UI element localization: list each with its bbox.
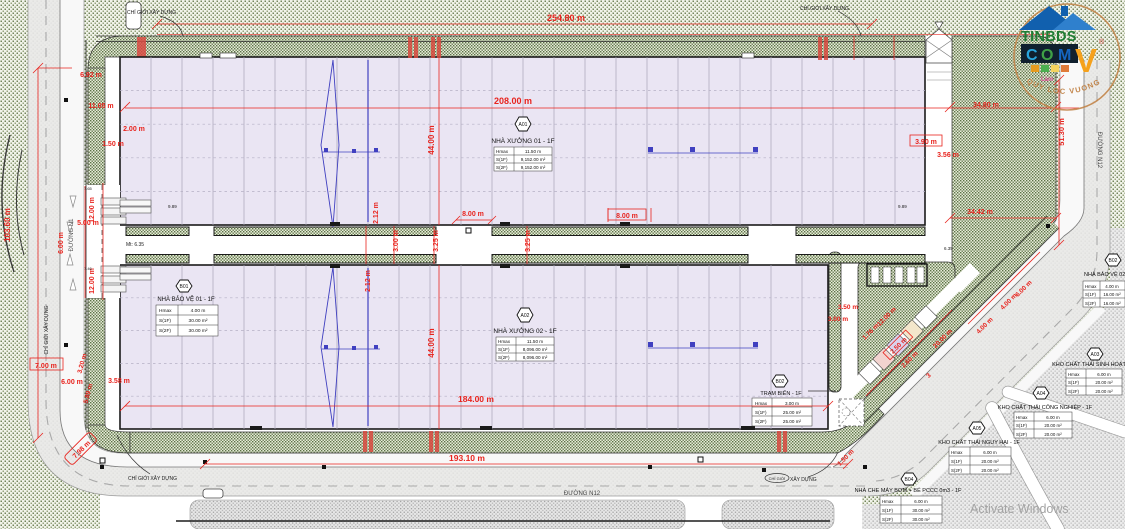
svg-text:TRẠM BIẾN - 1F: TRẠM BIẾN - 1F: [760, 390, 802, 397]
svg-text:3.50 m: 3.50 m: [838, 304, 858, 311]
svg-text:9,152.00 m²: 9,152.00 m²: [521, 165, 546, 170]
svg-text:A04: A04: [1037, 391, 1046, 397]
svg-text:16.00 m²: 16.00 m²: [1103, 301, 1121, 306]
svg-text:3.90 m: 3.90 m: [915, 139, 937, 146]
svg-text:S(2F): S(2F): [1016, 432, 1028, 437]
svg-text:C: C: [1026, 47, 1038, 64]
svg-text:B02: B02: [776, 379, 785, 385]
svg-text:NHÀ BẢO VỆ 01 - 1F: NHÀ BẢO VỆ 01 - 1F: [157, 295, 215, 303]
svg-text:25.00 m²: 25.00 m²: [783, 410, 802, 415]
svg-text:11.50 m: 11.50 m: [527, 339, 543, 344]
svg-text:Hmax: Hmax: [951, 450, 963, 455]
svg-text:S(1F): S(1F): [1085, 292, 1097, 297]
svg-text:6.00 m: 6.00 m: [914, 499, 928, 504]
svg-text:9,152.00 m²: 9,152.00 m²: [521, 157, 546, 162]
svg-text:20.00 m²: 20.00 m²: [1044, 432, 1062, 437]
svg-text:6.00 m: 6.00 m: [1097, 372, 1111, 377]
svg-text:KHO CHẤT THẢI CÔNG NGHIỆP - 1F: KHO CHẤT THẢI CÔNG NGHIỆP - 1F: [998, 403, 1093, 411]
svg-text:KHO CHẤT THẢI SINH HOẠT: KHO CHẤT THẢI SINH HOẠT: [1052, 361, 1125, 368]
svg-text:3.00 m: 3.00 m: [393, 230, 400, 252]
svg-text:34.42 m: 34.42 m: [967, 209, 993, 216]
svg-text:NHÀ XƯỞNG 01 - 1F: NHÀ XƯỞNG 01 - 1F: [491, 136, 554, 145]
svg-text:11.50 m: 11.50 m: [525, 149, 541, 154]
svg-text:S(1F): S(1F): [951, 459, 963, 464]
svg-text:CHỈ GIỚI XÂY DỰNG: CHỈ GIỚI XÂY DỰNG: [127, 9, 176, 16]
svg-text:XÂY DỰNG: XÂY DỰNG: [790, 476, 817, 483]
svg-text:103.60 m: 103.60 m: [3, 208, 12, 242]
svg-text:44.00 m: 44.00 m: [427, 328, 436, 357]
svg-text:7.65: 7.65: [84, 186, 93, 191]
svg-text:11.05 m: 11.05 m: [88, 103, 113, 110]
svg-text:16.00 m²: 16.00 m²: [1103, 292, 1121, 297]
svg-text:1.50 m: 1.50 m: [102, 141, 124, 148]
svg-text:Hmax: Hmax: [755, 401, 768, 406]
svg-text:S(1F): S(1F): [496, 157, 508, 162]
svg-text:6.92 m: 6.92 m: [80, 72, 102, 79]
svg-text:6.00 m: 6.00 m: [1046, 415, 1060, 420]
svg-text:Hmax: Hmax: [1085, 284, 1097, 289]
svg-text:S(1F): S(1F): [498, 347, 510, 352]
svg-text:ĐƯỜNG N1: ĐƯỜNG N1: [68, 218, 75, 252]
svg-text:2.12 m: 2.12 m: [373, 202, 380, 224]
svg-text:20.00 m²: 20.00 m²: [1095, 380, 1113, 385]
svg-text:2.12 m: 2.12 m: [365, 270, 372, 292]
svg-text:CHỈ GIỚI XÂY DỰNG: CHỈ GIỚI XÂY DỰNG: [43, 305, 50, 354]
svg-text:A01: A01: [519, 122, 528, 128]
svg-text:S(2F): S(2F): [755, 419, 767, 424]
svg-text:B02: B02: [1109, 258, 1118, 264]
svg-text:S(1F): S(1F): [1068, 380, 1080, 385]
svg-text:O: O: [1041, 47, 1053, 64]
svg-text:8.00 m: 8.00 m: [616, 213, 638, 220]
svg-text:20.00 m²: 20.00 m²: [1095, 389, 1113, 394]
svg-text:2.00 m: 2.00 m: [123, 126, 145, 133]
svg-text:51.30 m: 51.30 m: [1057, 118, 1066, 146]
svg-text:S(1F): S(1F): [882, 508, 894, 513]
svg-text:S(2F): S(2F): [1068, 389, 1080, 394]
svg-text:20.00 m²: 20.00 m²: [981, 468, 999, 473]
svg-text:Mt: 6.35: Mt: 6.35: [126, 242, 144, 248]
svg-text:B04: B04: [905, 477, 914, 483]
svg-text:208.00 m: 208.00 m: [494, 96, 532, 106]
svg-text:S(2F): S(2F): [496, 165, 508, 170]
svg-text:3.00 m: 3.00 m: [785, 401, 799, 406]
svg-text:NHÀ CHE MÁY BƠM + BỂ PCCC 0m3: NHÀ CHE MÁY BƠM + BỂ PCCC 0m3 - 1F: [855, 487, 962, 494]
svg-text:20.00 m²: 20.00 m²: [981, 459, 999, 464]
svg-text:ĐƯỜNG N12: ĐƯỜNG N12: [1096, 132, 1103, 169]
svg-text:B01: B01: [180, 284, 189, 290]
svg-text:ĐƯỜNG N12: ĐƯỜNG N12: [564, 490, 601, 497]
svg-text:NHÀ BẢO VỆ 02: NHÀ BẢO VỆ 02: [1084, 270, 1125, 278]
svg-text:S(2F): S(2F): [882, 517, 894, 522]
svg-text:S(2F): S(2F): [498, 355, 510, 360]
svg-text:Hmax: Hmax: [882, 499, 894, 504]
svg-text:8,096.00 m²: 8,096.00 m²: [523, 347, 548, 352]
svg-text:6.00 m: 6.00 m: [58, 232, 65, 254]
svg-text:9.89: 9.89: [168, 204, 177, 209]
svg-text:A05: A05: [973, 426, 982, 432]
svg-text:V: V: [1075, 42, 1097, 79]
svg-text:TINBDS: TINBDS: [1021, 29, 1077, 45]
svg-text:193.10 m: 193.10 m: [449, 453, 485, 463]
svg-text:184.00 m: 184.00 m: [458, 394, 494, 404]
svg-text:Activate Windows: Activate Windows: [970, 502, 1069, 516]
svg-text:3.58 m: 3.58 m: [108, 378, 130, 385]
svg-text:S(2F): S(2F): [159, 328, 171, 334]
svg-text:254.80 m: 254.80 m: [547, 13, 585, 23]
svg-text:30.00 m²: 30.00 m²: [912, 517, 930, 522]
svg-text:CHỈ GIỚI XÂY DỰNG: CHỈ GIỚI XÂY DỰNG: [128, 475, 177, 482]
svg-text:S(2F): S(2F): [951, 468, 963, 473]
svg-text:CHỈ GIỚI: CHỈ GIỚI: [769, 476, 786, 481]
svg-text:KHO CHẤT THẢI NGUY HẠI - 1F: KHO CHẤT THẢI NGUY HẠI - 1F: [938, 439, 1020, 446]
svg-text:25.00 m²: 25.00 m²: [783, 419, 802, 424]
svg-text:S(1F): S(1F): [755, 410, 767, 415]
svg-text:Hmax: Hmax: [496, 149, 509, 154]
svg-text:4.00 m: 4.00 m: [1105, 284, 1119, 289]
svg-text:Hmax: Hmax: [498, 339, 511, 344]
svg-text:6.35: 6.35: [944, 246, 953, 251]
svg-text:CHỈ GIỚI XÂY DỰNG: CHỈ GIỚI XÂY DỰNG: [800, 5, 849, 12]
svg-text:4.00 m: 4.00 m: [191, 308, 206, 314]
svg-text:M: M: [1058, 47, 1071, 64]
svg-text:S(2F): S(2F): [1085, 301, 1097, 306]
svg-text:Hmax: Hmax: [159, 308, 172, 314]
svg-text:NHÀ XƯỞNG 02 - 1F: NHÀ XƯỞNG 02 - 1F: [493, 326, 556, 335]
svg-text:3.56 m: 3.56 m: [937, 152, 959, 159]
svg-text:30.00 m²: 30.00 m²: [912, 508, 930, 513]
svg-text:6.00 m: 6.00 m: [61, 379, 83, 386]
svg-text:3.00 m: 3.00 m: [828, 316, 848, 323]
svg-text:44.00 m: 44.00 m: [427, 125, 436, 154]
svg-text:®: ®: [1099, 38, 1105, 46]
svg-text:Hmax: Hmax: [1068, 372, 1080, 377]
svg-text:30.00 m²: 30.00 m²: [189, 318, 208, 324]
svg-text:S(1F): S(1F): [159, 318, 171, 324]
svg-text:7.46: 7.46: [84, 266, 93, 271]
svg-text:A02: A02: [521, 313, 530, 319]
svg-text:12.00 m: 12.00 m: [89, 197, 96, 223]
svg-text:30.00 m²: 30.00 m²: [189, 328, 208, 334]
svg-text:A03: A03: [1091, 352, 1100, 358]
svg-text:Hmax: Hmax: [1016, 415, 1028, 420]
svg-text:20.00 m²: 20.00 m²: [1044, 423, 1062, 428]
svg-text:9.89: 9.89: [898, 204, 907, 209]
svg-text:3.25 m: 3.25 m: [433, 230, 440, 252]
svg-text:8,096.00 m²: 8,096.00 m²: [523, 355, 548, 360]
svg-text:12.00 m: 12.00 m: [89, 268, 96, 294]
svg-text:3.25 m: 3.25 m: [525, 230, 532, 252]
svg-text:S(1F): S(1F): [1016, 423, 1028, 428]
svg-text:6.00 m: 6.00 m: [983, 450, 997, 455]
svg-text:34.80 m: 34.80 m: [973, 102, 999, 109]
svg-text:Làm: Làm: [1041, 77, 1053, 83]
svg-text:8.00 m: 8.00 m: [462, 211, 484, 218]
svg-text:7.00 m: 7.00 m: [35, 363, 57, 370]
